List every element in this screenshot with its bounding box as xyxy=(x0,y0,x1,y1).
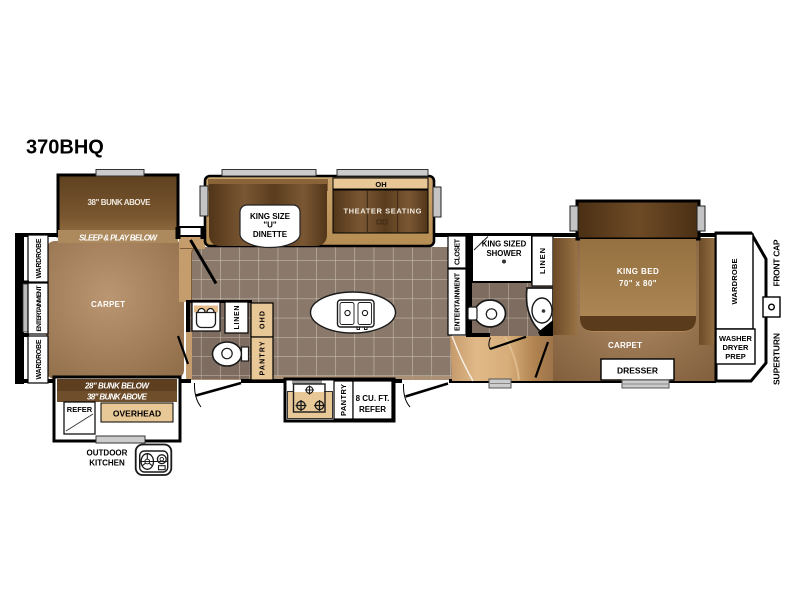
svg-text:KING SIZED: KING SIZED xyxy=(482,240,527,249)
svg-text:OVERHEAD: OVERHEAD xyxy=(113,409,161,419)
svg-text:KING BED: KING BED xyxy=(617,267,659,276)
svg-text:ENTERTAINMENT: ENTERTAINMENT xyxy=(36,286,43,332)
svg-text:CARPET: CARPET xyxy=(91,300,125,309)
svg-text:WASHER: WASHER xyxy=(719,334,753,343)
svg-text:DINETTE: DINETTE xyxy=(253,230,288,239)
svg-text:REFER: REFER xyxy=(67,405,93,414)
svg-text:SLEEP & PLAY BELOW: SLEEP & PLAY BELOW xyxy=(79,234,158,243)
svg-text:OHD: OHD xyxy=(259,311,266,329)
svg-text:PREP: PREP xyxy=(725,352,745,361)
svg-text:370BHQ: 370BHQ xyxy=(26,137,104,159)
svg-text:SUPERTURN: SUPERTURN xyxy=(771,333,781,385)
svg-text:"U": "U" xyxy=(263,221,277,230)
svg-text:38" BUNK ABOVE: 38" BUNK ABOVE xyxy=(87,393,148,402)
svg-text:OUTDOOR: OUTDOOR xyxy=(87,449,128,458)
svg-text:DRYER: DRYER xyxy=(723,343,750,352)
svg-text:WARDROBE: WARDROBE xyxy=(730,259,739,305)
svg-text:PANTRY: PANTRY xyxy=(259,341,266,375)
svg-text:LINEN: LINEN xyxy=(538,248,547,274)
svg-text:THEATER SEATING: THEATER SEATING xyxy=(344,207,422,216)
svg-text:CARPET: CARPET xyxy=(608,341,642,350)
svg-text:SHOWER: SHOWER xyxy=(486,249,521,258)
svg-text:8 CU. FT.: 8 CU. FT. xyxy=(356,394,390,403)
svg-text:REFER: REFER xyxy=(359,405,386,414)
svg-text:KITCHEN: KITCHEN xyxy=(89,459,125,468)
svg-text:38" BUNK ABOVE: 38" BUNK ABOVE xyxy=(88,198,152,207)
svg-text:WARDROBE: WARDROBE xyxy=(36,238,43,278)
svg-text:CLOSET: CLOSET xyxy=(454,238,461,265)
svg-text:OH: OH xyxy=(375,180,386,189)
svg-text:70" x 80": 70" x 80" xyxy=(619,279,657,288)
svg-text:PANTRY: PANTRY xyxy=(339,384,348,416)
svg-text:ENTERTAINMENT: ENTERTAINMENT xyxy=(454,272,461,331)
svg-text:DRESSER: DRESSER xyxy=(617,366,658,376)
svg-text:WARDROBE: WARDROBE xyxy=(36,339,43,379)
svg-text:LINEN: LINEN xyxy=(234,306,241,330)
svg-text:FRONT CAP: FRONT CAP xyxy=(771,239,781,286)
svg-text:28" BUNK BELOW: 28" BUNK BELOW xyxy=(84,382,150,391)
